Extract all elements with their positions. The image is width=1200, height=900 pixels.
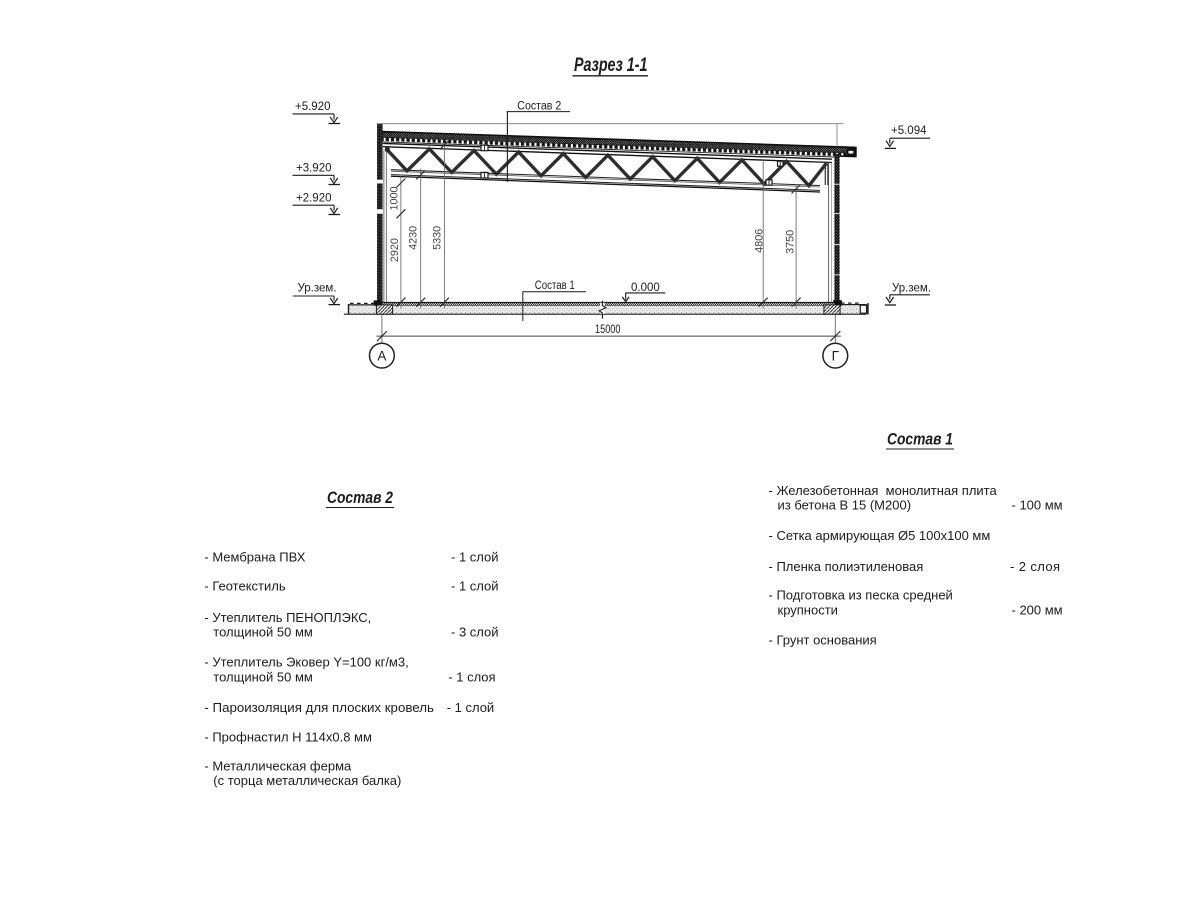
svg-text:- 2 слоя: - 2 слоя <box>1010 559 1060 574</box>
svg-text:+5.094: +5.094 <box>891 125 927 137</box>
svg-text:Ур.зем.: Ур.зем. <box>892 282 931 294</box>
svg-text:- Грунт основания: - Грунт основания <box>769 633 877 648</box>
svg-text:- Геотекстиль: - Геотекстиль <box>204 579 285 594</box>
svg-text:3750: 3750 <box>784 230 796 254</box>
svg-text:- 200 мм: - 200 мм <box>1012 603 1063 618</box>
svg-text:4806: 4806 <box>753 229 765 253</box>
svg-text:- 1 слоя: - 1 слоя <box>448 670 495 685</box>
svg-text:- Профнастил Н 114х0.8 мм: - Профнастил Н 114х0.8 мм <box>204 730 372 745</box>
svg-text:- Подготовка из песка средней: - Подготовка из песка средней <box>769 588 953 603</box>
svg-text:- Утеплитель ПЕНОПЛЭКС,: - Утеплитель ПЕНОПЛЭКС, <box>204 610 371 625</box>
svg-text:- 3 слой: - 3 слой <box>451 625 499 640</box>
svg-text:- Сетка армирующая Ø5 100х100: - Сетка армирующая Ø5 100х100 мм <box>769 528 991 543</box>
svg-text:- 1 слой: - 1 слой <box>451 550 499 565</box>
svg-text:Состав 2: Состав 2 <box>327 489 393 507</box>
svg-text:+3.920: +3.920 <box>296 162 332 174</box>
svg-text:Г: Г <box>832 348 840 363</box>
svg-text:крупности: крупности <box>778 603 838 618</box>
svg-text:Состав 2: Состав 2 <box>517 100 561 112</box>
svg-text:Разрез 1-1: Разрез 1-1 <box>574 55 648 76</box>
svg-text:+5.920: +5.920 <box>295 101 331 113</box>
svg-text:+2.920: +2.920 <box>296 192 332 204</box>
svg-text:1000: 1000 <box>389 186 401 210</box>
svg-text:- Утеплитель Эковер Y=100 кг/м: - Утеплитель Эковер Y=100 кг/м3, <box>204 655 408 670</box>
svg-text:- Железобетонная монолитная п: - Железобетонная монолитная плита <box>769 483 998 498</box>
svg-text:- 100 мм: - 100 мм <box>1012 498 1063 513</box>
svg-text:Состав 1: Состав 1 <box>887 431 953 449</box>
svg-text:2920: 2920 <box>389 238 401 262</box>
svg-text:- 1 слой: - 1 слой <box>447 700 495 715</box>
svg-text:толщиной 50 мм: толщиной 50 мм <box>213 670 313 685</box>
svg-text:толщиной 50 мм: толщиной 50 мм <box>213 625 313 640</box>
svg-text:Состав 1: Состав 1 <box>535 280 575 292</box>
svg-text:(с торца металлическая балка): (с торца металлическая балка) <box>213 773 401 788</box>
svg-text:15000: 15000 <box>595 322 621 336</box>
svg-text:из бетона В 15 (М200): из бетона В 15 (М200) <box>778 498 912 513</box>
svg-text:0.000: 0.000 <box>631 282 660 294</box>
svg-text:А: А <box>377 348 386 363</box>
svg-text:5330: 5330 <box>431 226 443 250</box>
svg-text:- Мембрана ПВХ: - Мембрана ПВХ <box>204 550 305 565</box>
svg-text:- Пароизоляция для плоских кро: - Пароизоляция для плоских кровель <box>204 700 434 715</box>
svg-text:- 1 слой: - 1 слой <box>451 579 499 594</box>
svg-text:- Пленка полиэтиленовая: - Пленка полиэтиленовая <box>769 559 924 574</box>
svg-text:Ур.зем.: Ур.зем. <box>298 283 337 295</box>
svg-text:4230: 4230 <box>407 226 419 250</box>
svg-text:- Металлическая ферма: - Металлическая ферма <box>204 759 352 774</box>
